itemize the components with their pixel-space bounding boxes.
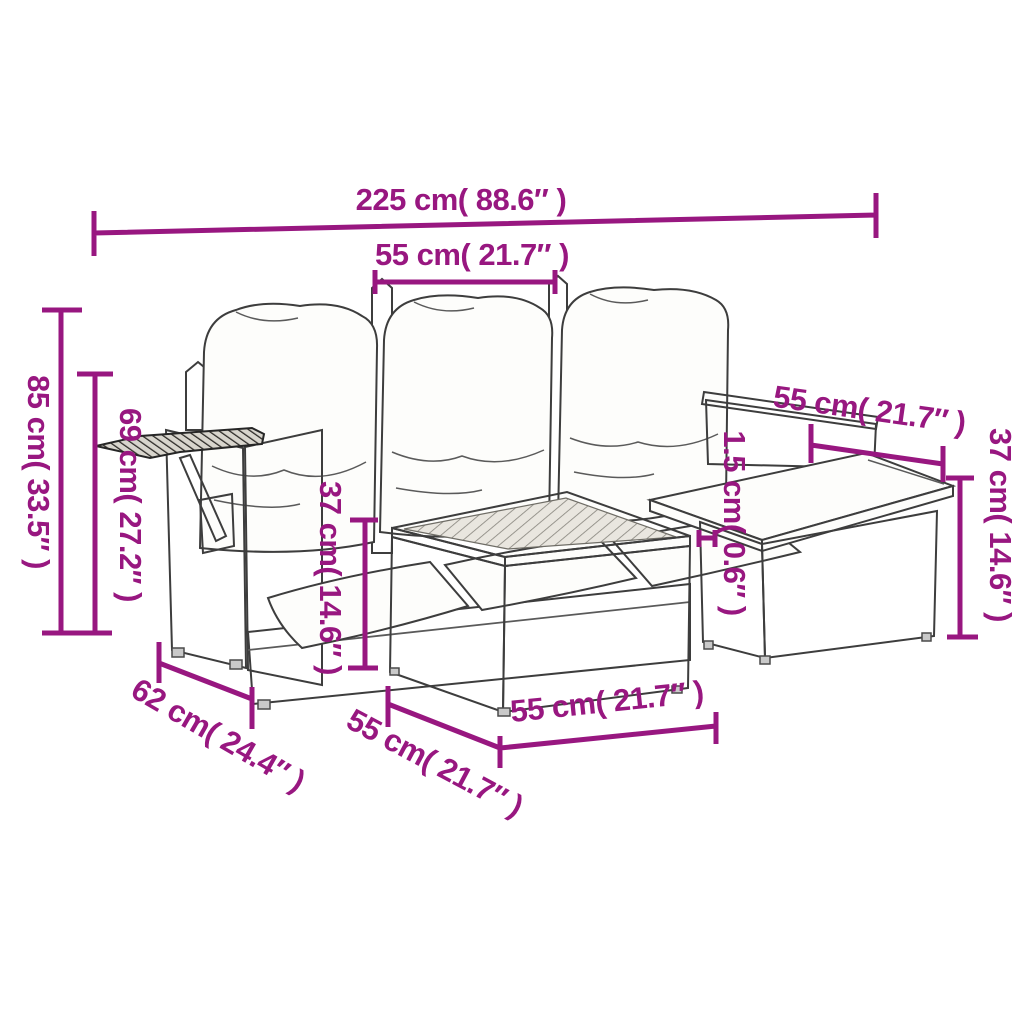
dim-line-ottoman-height (946, 478, 978, 637)
dim-line-armrest-height (77, 374, 113, 633)
label-ottoman-height: 37 cm( 14.6″ ) (983, 428, 1018, 622)
label-seat-height: 37 cm( 14.6″ ) (313, 481, 348, 675)
label-seat-width: 55 cm( 21.7″ ) (375, 237, 569, 272)
label-overall-height: 85 cm( 33.5″ ) (21, 375, 56, 569)
label-table-width: 55 cm( 21.7″ ) (509, 674, 706, 729)
sofa-foot (258, 700, 270, 709)
product-dimension-diagram: 225 cm( 88.6″ ) 55 cm( 21.7″ ) 85 cm( 33… (0, 0, 1024, 1024)
label-backrest-width: 55 cm( 21.7″ ) (771, 379, 968, 441)
furniture-dimension-svg: 225 cm( 88.6″ ) 55 cm( 21.7″ ) 85 cm( 33… (0, 0, 1024, 1024)
seat-cushion-left (268, 562, 468, 648)
furniture-line-art (96, 276, 953, 716)
label-armrest-height: 69 cm( 27.2″ ) (113, 408, 148, 602)
back-cushion-left (200, 304, 377, 552)
label-seat-depth: 62 cm( 24.4″ ) (126, 671, 311, 798)
label-overall-width: 225 cm( 88.6″ ) (356, 182, 567, 217)
label-board-thickness: 1.5 cm( 0.6″ ) (717, 430, 752, 615)
dim-line-seat-width (375, 270, 555, 294)
